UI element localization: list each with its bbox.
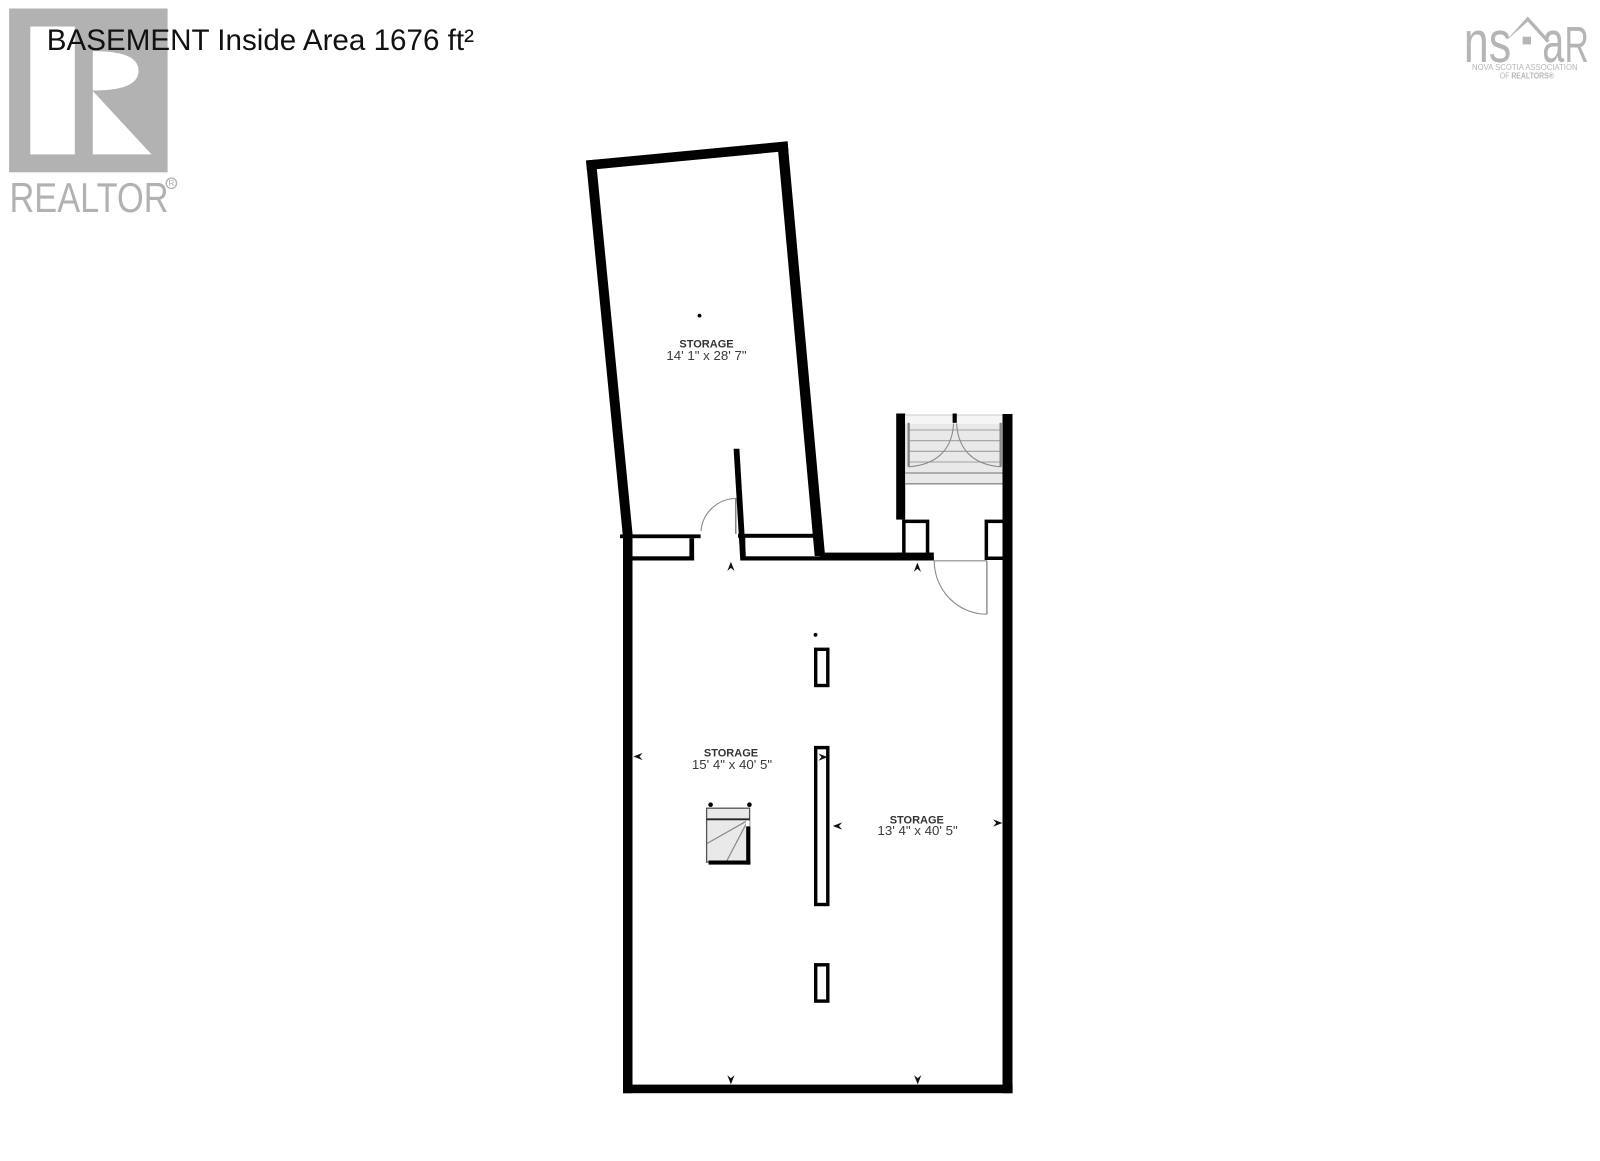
svg-text:REALTOR: REALTOR	[10, 174, 169, 221]
svg-text:BASEMENT Inside Area 1676 ft²: BASEMENT Inside Area 1676 ft²	[47, 24, 474, 57]
svg-text:15' 4" x 40' 5": 15' 4" x 40' 5"	[692, 757, 773, 772]
svg-text:R: R	[169, 179, 175, 188]
svg-text:OF REALTORS®: OF REALTORS®	[1500, 71, 1555, 81]
svg-text:13' 4" x 40' 5": 13' 4" x 40' 5"	[877, 823, 958, 838]
svg-text:14' 1" x 28' 7": 14' 1" x 28' 7"	[666, 348, 747, 363]
